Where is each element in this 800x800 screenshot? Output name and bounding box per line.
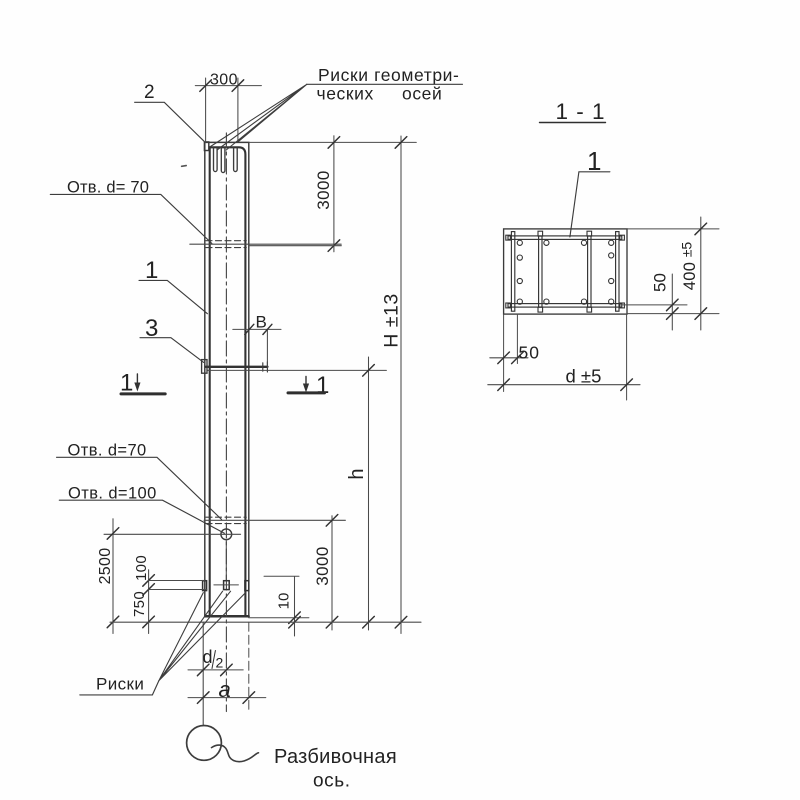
svg-text:3000: 3000 [313,546,332,585]
svg-text:Отв. d= 70: Отв. d= 70 [67,179,149,197]
svg-text:a: a [219,677,231,702]
svg-text:1: 1 [316,372,329,399]
svg-text:В: В [256,313,267,332]
svg-text:Разбивочная: Разбивочная [274,746,397,768]
svg-text:2: 2 [216,655,224,671]
svg-text:1 - 1: 1 - 1 [556,99,606,124]
svg-text:Риски геометри-: Риски геометри- [318,65,460,85]
svg-text:ческих: ческих [317,84,374,104]
svg-text:h: h [346,468,368,479]
svg-text:±5: ±5 [679,242,695,258]
svg-text:H ±13: H ±13 [381,293,403,347]
svg-text:400: 400 [681,262,699,290]
svg-text:d ±5: d ±5 [566,366,602,387]
svg-text:d: d [203,647,213,667]
svg-text:50: 50 [651,273,670,292]
svg-text:10: 10 [276,593,293,610]
svg-text:750: 750 [131,591,148,617]
svg-text:ось.: ось. [313,771,351,792]
svg-text:3000: 3000 [314,170,333,209]
svg-text:50: 50 [519,343,540,363]
svg-text:300: 300 [210,72,238,89]
svg-text:2500: 2500 [97,548,114,585]
svg-text:100: 100 [133,555,150,581]
svg-text:Риски: Риски [96,675,144,694]
svg-text:1: 1 [145,257,158,284]
svg-text:2: 2 [144,82,155,103]
svg-text:осей: осей [402,84,442,104]
